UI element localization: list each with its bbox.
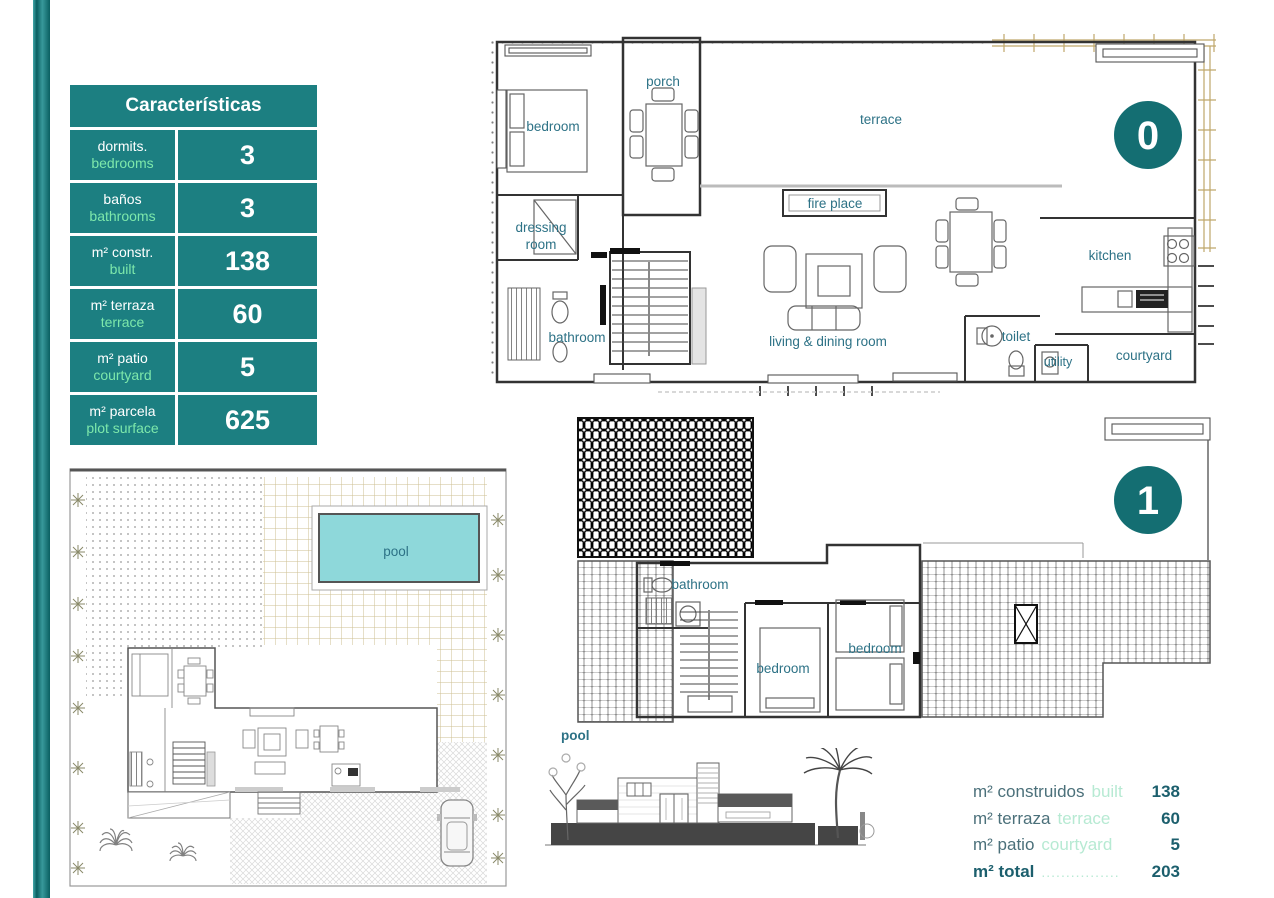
pool-caption: pool [561, 728, 590, 743]
summary-value: 5 [1171, 832, 1180, 859]
room-label-dressing-2: room [526, 237, 557, 252]
label-en: plot surface [86, 420, 158, 437]
summary-row-courtyard: m² patio courtyard 5 [973, 832, 1180, 859]
summary-en: built [1091, 779, 1122, 806]
left-roof-tiles [578, 561, 673, 722]
label-es: m² parcela [89, 403, 155, 420]
label-en: bathrooms [89, 208, 155, 225]
summary-row-built: m² construidos built 138 [973, 779, 1180, 806]
room-label-utility: utility [1044, 355, 1073, 369]
label-es: dormits. [98, 138, 148, 155]
room-label-bedroom: bedroom [526, 119, 579, 134]
pergola-lines [992, 34, 1216, 252]
characteristic-value-terrace: 60 [178, 289, 317, 339]
characteristics-title: Características [70, 85, 317, 127]
right-roof-tiles [922, 561, 1210, 717]
site-plan: pool [64, 462, 512, 892]
characteristic-value-courtyard: 5 [178, 342, 317, 392]
pool: pool [312, 506, 487, 590]
car [437, 800, 477, 866]
hedge [551, 823, 858, 845]
area-summary: m² construidos built 138 m² terraza terr… [973, 779, 1180, 885]
gravel-area-2 [86, 648, 126, 700]
label-es: m² patio [97, 350, 148, 367]
characteristic-value-built: 138 [178, 236, 317, 286]
characteristic-value-bathrooms: 3 [178, 183, 317, 233]
label-en: courtyard [93, 367, 151, 384]
room-label-bathroom: bathroom [548, 330, 605, 345]
summary-es: m² patio [973, 832, 1034, 859]
characteristic-label-built: m² constr. built [70, 236, 175, 286]
paved-area-2 [437, 645, 487, 742]
summary-value: 203 [1152, 859, 1180, 886]
house-elevation [577, 763, 792, 823]
summary-es: m² terraza [973, 806, 1050, 833]
room-label-terrace: terrace [860, 112, 902, 127]
floor-plan-1: bathroom bedroom bedroom 1 [570, 408, 1218, 734]
summary-value: 60 [1161, 806, 1180, 833]
summary-value: 138 [1152, 779, 1180, 806]
dark-roof-tiles [578, 418, 753, 557]
summary-es: m² total [973, 859, 1034, 886]
characteristic-value-bedrooms: 3 [178, 130, 317, 180]
label-es: m² terraza [91, 297, 155, 314]
room-label-bedroom-right: bedroom [848, 641, 901, 656]
summary-row-total: m² total ................ 203 [973, 859, 1180, 886]
label-en: bedrooms [91, 155, 153, 172]
characteristic-label-terrace: m² terraza terrace [70, 289, 175, 339]
room-label-bedroom-center: bedroom [756, 661, 809, 676]
floor-1-badge-number: 1 [1137, 479, 1159, 523]
summary-es: m² construidos [973, 779, 1084, 806]
characteristic-label-bathrooms: baños bathrooms [70, 183, 175, 233]
room-label-bathroom-f1: bathroom [671, 577, 728, 592]
elevation-sketch [530, 748, 875, 866]
characteristic-label-plot: m² parcela plot surface [70, 395, 175, 445]
floor-0-badge-number: 0 [1137, 114, 1159, 158]
summary-en: terrace [1057, 806, 1110, 833]
summary-dots: ................ [1041, 859, 1119, 886]
room-label-porch: porch [646, 74, 680, 89]
label-en: built [110, 261, 136, 278]
floor-plan-0: porch bedroom terrace fire place dressin… [483, 30, 1217, 400]
floor-0-badge: 0 [1114, 101, 1182, 169]
characteristics-table: Características dormits. bedrooms 3 baño… [70, 85, 317, 445]
room-label-toilet: toilet [1002, 329, 1031, 344]
room-label-fireplace: fire place [808, 196, 863, 211]
characteristic-label-bedrooms: dormits. bedrooms [70, 130, 175, 180]
room-label-courtyard: courtyard [1116, 348, 1172, 363]
gravel-area [86, 477, 262, 648]
room-label-dressing-1: dressing [515, 220, 566, 235]
floor1-window [1105, 418, 1210, 440]
room-label-living: living & dining room [769, 334, 887, 349]
characteristic-value-plot: 625 [178, 395, 317, 445]
summary-en: courtyard [1041, 832, 1112, 859]
floor1-walls [637, 545, 920, 717]
left-accent-bar [33, 0, 50, 898]
characteristic-label-courtyard: m² patio courtyard [70, 342, 175, 392]
label-es: m² constr. [92, 244, 153, 261]
label-en: terrace [101, 314, 145, 331]
room-label-kitchen: kitchen [1089, 248, 1132, 263]
dot-border-pattern [487, 34, 987, 379]
summary-row-terrace: m² terraza terrace 60 [973, 806, 1180, 833]
floor-1-badge: 1 [1114, 466, 1182, 534]
label-es: baños [103, 191, 141, 208]
chimney [1015, 605, 1037, 643]
pool-label: pool [383, 544, 409, 559]
brochure-page: Características dormits. bedrooms 3 baño… [0, 0, 1274, 898]
